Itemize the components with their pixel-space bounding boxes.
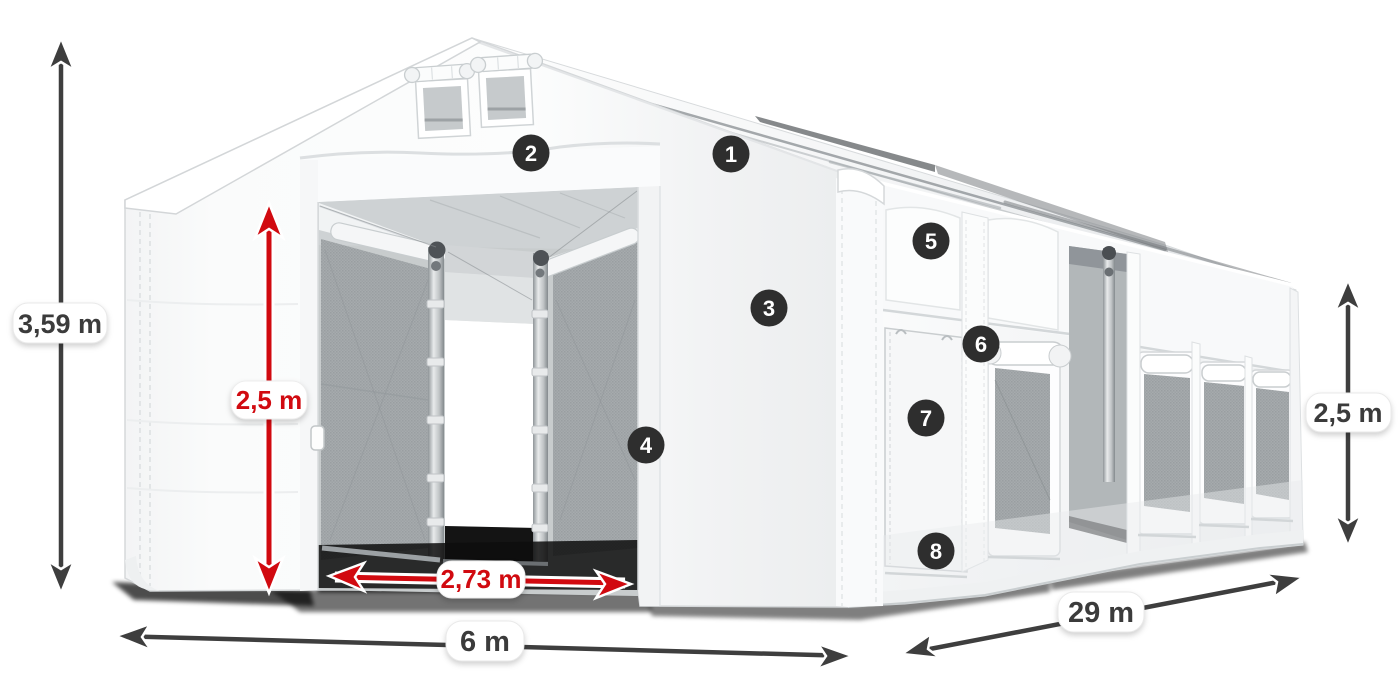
- svg-text:6: 6: [975, 332, 987, 357]
- svg-text:2,73 m: 2,73 m: [441, 564, 522, 594]
- svg-text:8: 8: [930, 539, 942, 564]
- svg-text:29 m: 29 m: [1068, 597, 1134, 629]
- svg-text:6 m: 6 m: [460, 626, 510, 658]
- svg-text:1: 1: [725, 142, 737, 167]
- svg-text:2,5 m: 2,5 m: [236, 385, 303, 415]
- svg-text:3: 3: [763, 296, 775, 321]
- svg-text:7: 7: [920, 406, 932, 431]
- svg-text:3,59 m: 3,59 m: [18, 309, 102, 339]
- svg-text:5: 5: [925, 229, 937, 254]
- svg-text:4: 4: [640, 433, 653, 458]
- svg-text:2,5 m: 2,5 m: [1313, 398, 1382, 428]
- svg-text:2: 2: [525, 141, 537, 166]
